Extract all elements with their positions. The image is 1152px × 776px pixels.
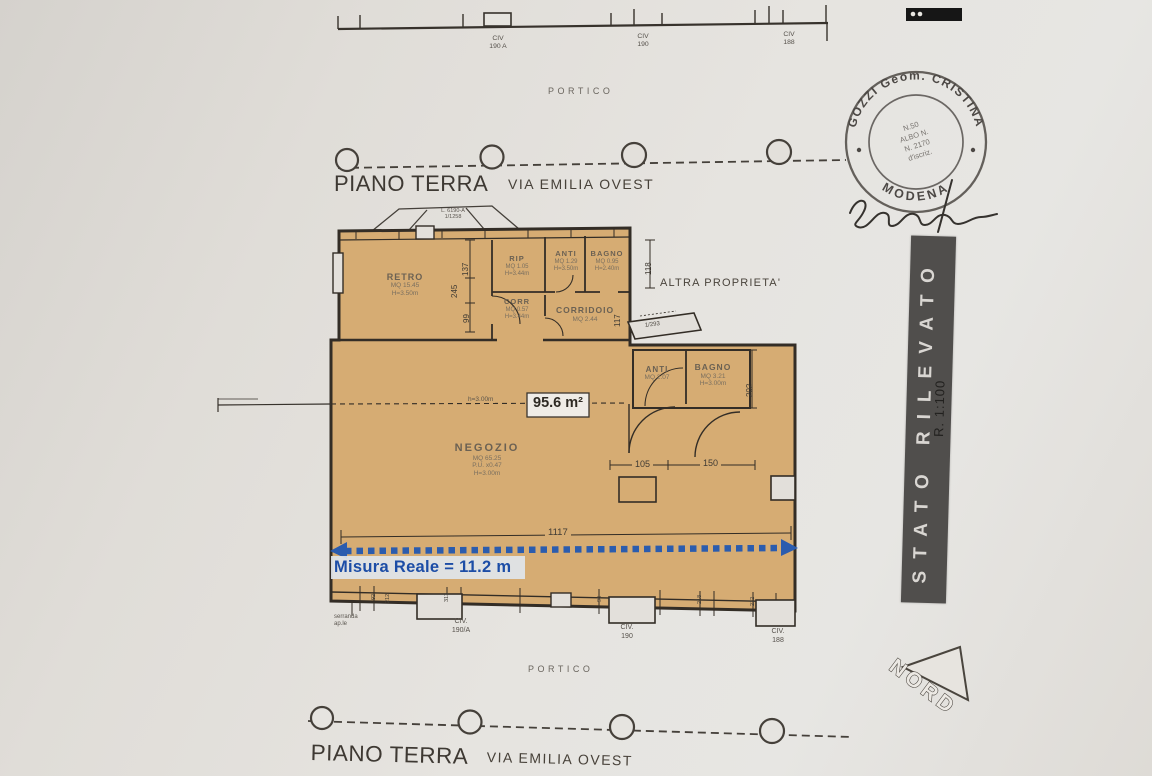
civ-label-top-190a: CIV 190 A xyxy=(483,35,513,52)
portico-label-top: PORTICO xyxy=(548,86,613,96)
room-anti-mid: ANTI MQ 2.07 xyxy=(634,365,680,382)
civ-line: 190 A xyxy=(483,43,513,51)
portico-label-bottom: PORTICO xyxy=(528,664,593,674)
room-note: P.U. x0.47 xyxy=(447,462,527,469)
civ-line: 188 xyxy=(763,637,793,646)
civ-line: 190 xyxy=(612,633,642,642)
dim-245: 245 xyxy=(450,285,459,298)
civ-line: CIV. xyxy=(612,624,642,633)
serranda-line: ap.le xyxy=(334,621,358,628)
civ-line: CIV xyxy=(774,31,804,39)
surveyor-stamp: GOZZI Geom. CRISTINA MODENA N.50 ALBO N.… xyxy=(845,69,997,232)
piano-terra-title-top: PIANO TERRA xyxy=(334,171,488,196)
room-area: MQ 1.05 xyxy=(495,264,539,271)
svg-text:MODENA: MODENA xyxy=(880,180,952,204)
top-street-wall xyxy=(338,5,828,41)
stamp-arc-bottom-text: MODENA xyxy=(880,180,952,204)
scale-label: R. 1:100 xyxy=(931,380,948,438)
room-height: H=3.50m xyxy=(370,290,440,297)
tick-number: 212 xyxy=(385,594,391,603)
room-height: H=2.40m xyxy=(586,266,628,273)
area-box: 95.6 m² xyxy=(527,395,589,416)
dim-118: 118 xyxy=(644,262,653,275)
nord-compass: NORD xyxy=(885,647,968,720)
cutoff-banner-edge xyxy=(906,8,962,21)
top-colonnade xyxy=(336,140,846,171)
tick-number: 98 xyxy=(597,596,603,602)
dim-1117: 1117 xyxy=(545,527,571,538)
via-emilia-ovest-top: VIA EMILIA OVEST xyxy=(508,176,654,192)
misura-reale-text: Misura Reale = 11.2 m xyxy=(331,558,511,577)
civ-line: CIV xyxy=(628,33,658,41)
tick-number: 218 xyxy=(697,595,703,604)
room-height: H=3.44m xyxy=(495,271,539,278)
room-name: RIP xyxy=(495,255,539,264)
civ-line: 190/A xyxy=(444,627,478,636)
civ-line: 190 xyxy=(628,41,658,49)
room-area: MQ 0.95 xyxy=(586,259,628,266)
serranda-note: serranda ap.le xyxy=(334,614,358,628)
room-height: H=3.00m xyxy=(447,470,527,477)
room-name: ANTI xyxy=(546,250,586,259)
dim-150: 150 xyxy=(700,458,721,468)
room-corr: CORR MQ 0.57 H=3.44m xyxy=(496,298,538,320)
left-extension-line xyxy=(218,398,331,412)
plan-linework: GOZZI Geom. CRISTINA MODENA N.50 ALBO N.… xyxy=(0,0,1152,776)
room-area: MQ 3.21 xyxy=(686,373,740,380)
piano-terra-title-bottom: PIANO TERRA xyxy=(310,740,468,770)
room-name: CORR xyxy=(496,298,538,307)
room-name: BAGNO xyxy=(686,363,740,373)
room-area: MQ 15.45 xyxy=(370,282,440,289)
altra-proprieta-label: ALTRA PROPRIETA' xyxy=(660,277,781,290)
dim-137: 137 xyxy=(461,263,470,276)
room-bagno-top: BAGNO MQ 0.95 H=2.40m xyxy=(586,250,628,272)
civ-label-top-188: CIV 188 xyxy=(774,31,804,48)
civ-line: CIV. xyxy=(763,628,793,637)
room-bagno-mid: BAGNO MQ 3.21 H=3.00m xyxy=(686,363,740,388)
civ-line: CIV xyxy=(483,35,513,43)
tick-number: 313 xyxy=(444,593,450,602)
scanned-floorplan-sheet: GOZZI Geom. CRISTINA MODENA N.50 ALBO N.… xyxy=(0,0,1152,776)
room-height: H=3.00m xyxy=(686,380,740,387)
canopy-line: 1/1258 xyxy=(430,214,476,220)
civ-line: CIV. xyxy=(444,618,478,627)
civ-label-bottom-190a: CIV. 190/A xyxy=(444,618,478,636)
serranda-line: serranda xyxy=(334,614,358,621)
civ-label-bottom-190: CIV. 190 xyxy=(612,624,642,642)
room-retro: RETRO MQ 15.45 H=3.50m xyxy=(370,272,440,297)
dim-105: 105 xyxy=(632,459,653,469)
room-area: MQ 65.25 xyxy=(447,455,527,462)
dim-117: 117 xyxy=(613,314,622,327)
room-name: ANTI xyxy=(634,365,680,374)
room-name: BAGNO xyxy=(586,250,628,259)
room-area: MQ 1.29 xyxy=(546,259,586,266)
room-name: NEGOZIO xyxy=(447,442,527,455)
misura-reale-highlight: Misura Reale = 11.2 m xyxy=(331,556,525,579)
dim-99: 99 xyxy=(462,314,471,323)
room-height: H=3.50m xyxy=(546,266,586,273)
room-area: MQ 2.07 xyxy=(634,374,680,381)
room-negozio: NEGOZIO MQ 65.25 P.U. x0.47 H=3.00m xyxy=(447,442,527,477)
civ-line: 188 xyxy=(774,39,804,47)
room-height: H=3.44m xyxy=(496,314,538,321)
bottom-colonnade xyxy=(308,707,852,743)
dashed-height-label: h=3.00m xyxy=(466,396,495,403)
room-rip: RIP MQ 1.05 H=3.44m xyxy=(495,255,539,277)
tick-number: 92 xyxy=(371,594,377,600)
canopy-note: L. 6190-A 1/1258 xyxy=(430,208,476,221)
civ-label-bottom-188: CIV. 188 xyxy=(763,628,793,646)
room-anti-top: ANTI MQ 1.29 H=3.50m xyxy=(546,250,586,272)
civ-label-top-190: CIV 190 xyxy=(628,33,658,50)
dim-202: 202 xyxy=(745,384,754,397)
tick-number: 212 xyxy=(750,597,756,606)
room-area: MQ 0.57 xyxy=(496,307,538,314)
room-name: RETRO xyxy=(370,272,440,282)
